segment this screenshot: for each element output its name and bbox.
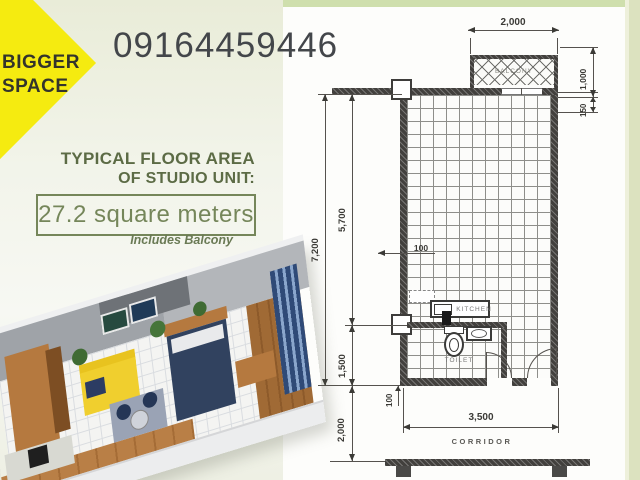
floor-area-box: 27.2 square meters [36,194,256,236]
dim-balcony-depth: 1,000 [578,56,588,90]
dim-ext-line [318,94,402,95]
flyer-page: BIGGER SPACE 09164459446 TYPICAL FLOOR A… [0,0,640,480]
dim-ext-line [330,461,385,462]
wall-bottom [512,378,527,386]
balcony-wall [470,55,558,59]
headline-line1: TYPICAL FLOOR AREA [30,148,255,169]
balcony-door-mullion [521,88,522,95]
corridor-column [396,466,411,477]
dim-arrow [378,250,385,256]
balcony-label: BALCONY [476,68,552,75]
dim-side-wall: 100 [408,243,434,253]
headline-line2: OF STUDIO UNIT: [30,169,255,189]
dim-arrow [468,27,475,33]
dim-arrow [395,386,401,391]
dim-line [325,94,326,386]
dim-arrow [590,47,596,54]
dim-arrow [403,424,410,430]
dim-arrow [552,27,559,33]
balcony-door-opening [502,88,542,95]
column-marker [391,79,412,100]
side-accent-band [629,0,640,480]
stove [442,311,451,325]
dim-arrow [349,94,355,101]
lavatory-basin [471,329,487,338]
dim-arrow [349,379,355,386]
wall-bottom [400,378,487,386]
dim-arrow [552,424,559,430]
dim-arrow [590,90,596,97]
toilet-label: TOILET [440,357,478,364]
dim-line [352,94,353,386]
dim-unit-width: 3,500 [452,412,510,423]
dim-arrow [349,454,355,461]
banner-line2: SPACE [2,77,69,96]
dim-unit-length: 7,200 [310,222,321,262]
ledge-line [558,112,598,113]
dim-parapet: 150 [579,99,588,117]
wall-bottom [551,378,558,386]
dim-arrow [349,325,355,332]
dim-line [468,30,559,31]
top-accent-strip [283,0,628,7]
dim-leader [378,253,435,254]
wall-left [400,95,407,386]
toilet-bowl-inner [449,338,459,352]
dim-balcony-width: 2,000 [480,17,546,28]
dim-ext-line [318,385,402,386]
dim-arrow [322,379,328,386]
wall-right [551,95,558,386]
dim-arrow [349,318,355,325]
dim-ext-line [557,38,558,54]
corridor-column [552,466,567,477]
balcony-wall [470,55,474,88]
headline: TYPICAL FLOOR AREA OF STUDIO UNIT: [30,148,255,189]
kitchen-label: KITCHEN [450,306,498,313]
dim-arrow [590,97,596,102]
balcony-wall [554,55,558,88]
dim-arrow [349,386,355,393]
dim-arrow [590,107,596,112]
dim-ext-line [470,38,471,54]
toilet-door-leaf [486,352,487,378]
dim-toilet-zone: 1,500 [337,340,348,378]
dim-line [352,386,353,461]
dim-line [403,427,559,428]
corridor-wall [385,459,590,466]
phone-number: 09164459446 [113,26,338,66]
area-note: Includes Balcony [0,233,233,247]
dim-corridor-width: 2,000 [336,402,347,442]
entry-door-leaf [556,348,557,378]
corridor-label: CORRIDOR [442,437,522,446]
dim-arrow [322,94,328,101]
dim-living-length: 5,700 [337,192,348,232]
dim-bottom-wall: 100 [385,389,394,407]
banner-line1: BIGGER [2,53,80,72]
